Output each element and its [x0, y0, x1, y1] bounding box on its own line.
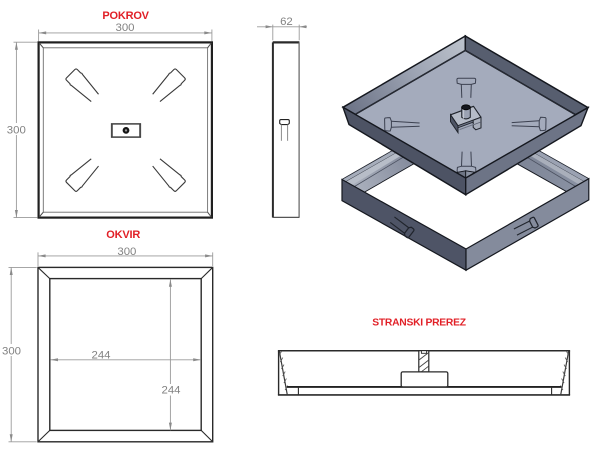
svg-text:300: 300: [115, 22, 134, 34]
svg-text:POKROV: POKROV: [102, 10, 149, 22]
svg-text:244: 244: [91, 350, 110, 362]
svg-text:300: 300: [117, 246, 136, 258]
svg-text:62: 62: [280, 16, 293, 28]
svg-text:244: 244: [161, 385, 180, 397]
svg-text:300: 300: [7, 125, 26, 137]
svg-text:300: 300: [2, 346, 21, 358]
svg-text:OKVIR: OKVIR: [106, 229, 140, 241]
svg-text:STRANSKI PREREZ: STRANSKI PREREZ: [372, 318, 466, 329]
